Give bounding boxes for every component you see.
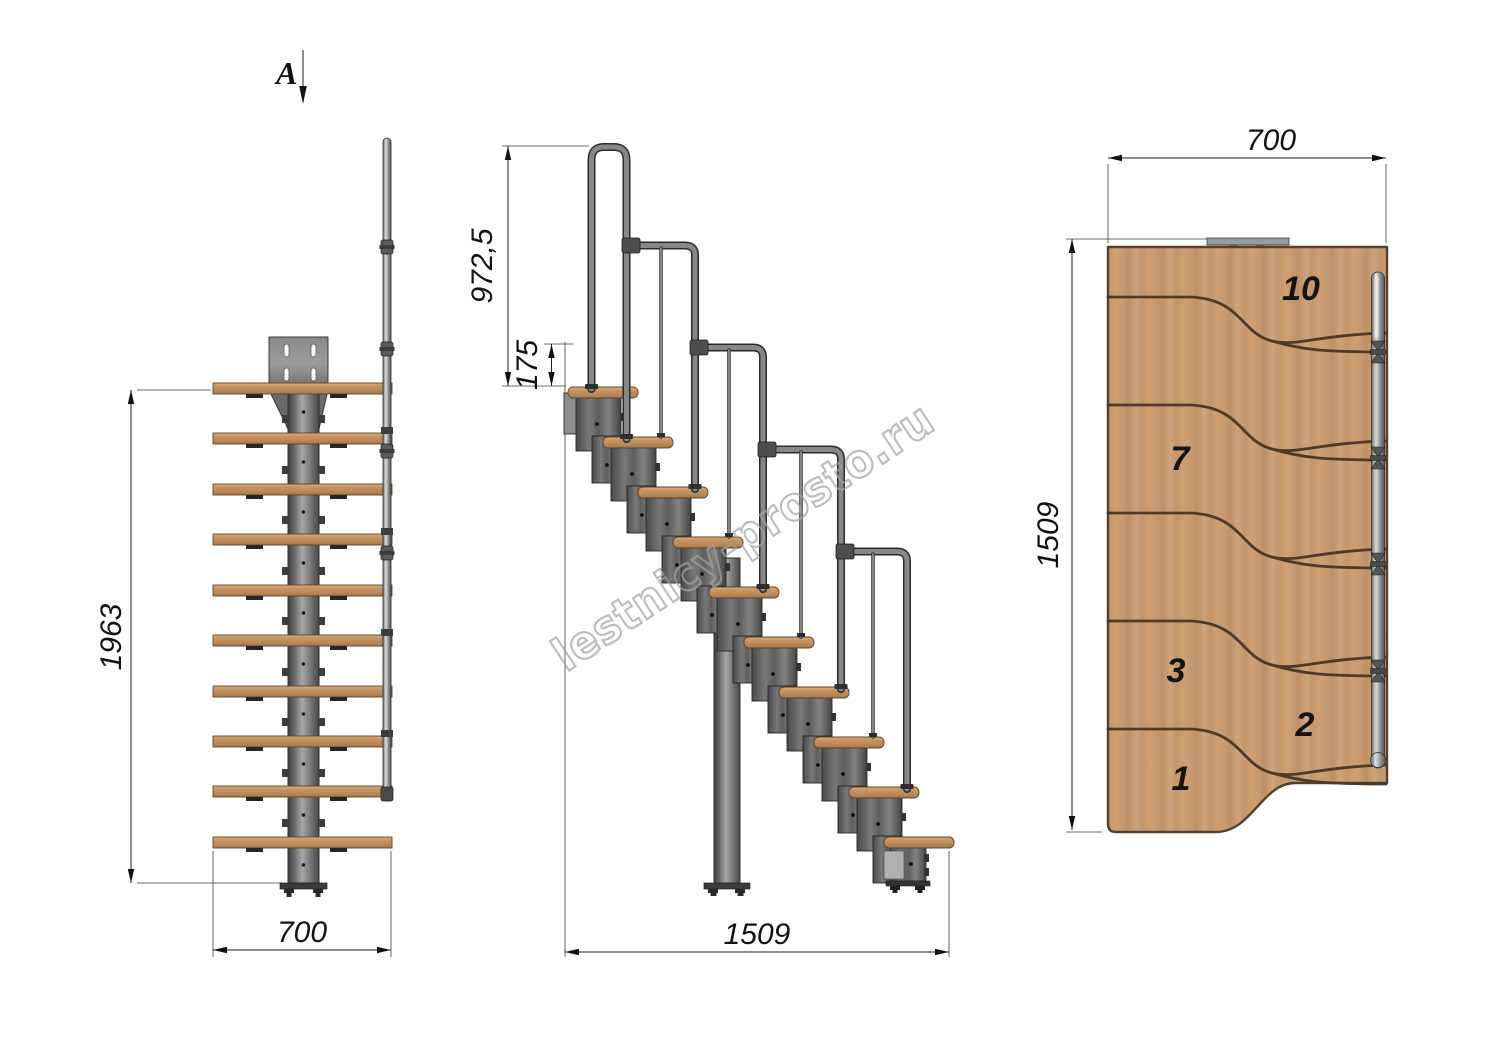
front-column-base [280, 883, 327, 897]
view-direction-arrow-head [299, 86, 307, 104]
view-direction-marker: A [274, 50, 307, 104]
side-bottom-step [884, 837, 954, 893]
step-number-7: 7 [1171, 440, 1192, 478]
step-number-10: 10 [1282, 270, 1320, 308]
side-length-value: 1509 [724, 918, 791, 951]
side-rise-value: 175 [511, 340, 544, 390]
front-width-value: 700 [277, 916, 327, 949]
front-handrail-post [380, 138, 395, 801]
step-number-2: 2 [1295, 706, 1315, 744]
side-handrail-height-value: 972,5 [466, 228, 499, 303]
technical-drawing: A 1963 [0, 0, 1500, 1061]
top-width-dimension: 700 [1108, 124, 1386, 243]
view-direction-letter: A [274, 55, 297, 91]
step-number-1: 1 [1172, 760, 1191, 798]
step-number-3: 3 [1167, 652, 1186, 690]
front-height-value: 1963 [95, 603, 128, 670]
top-handrail-rod [1371, 272, 1386, 768]
side-rise-dimension: 175 [511, 340, 573, 390]
top-view: 700 1509 [1032, 124, 1387, 832]
front-view: 1963 [95, 138, 395, 957]
staircase-technical-drawing-page: A 1963 [0, 0, 1500, 1061]
top-depth-value: 1509 [1032, 501, 1065, 568]
top-width-value: 700 [1246, 124, 1296, 157]
